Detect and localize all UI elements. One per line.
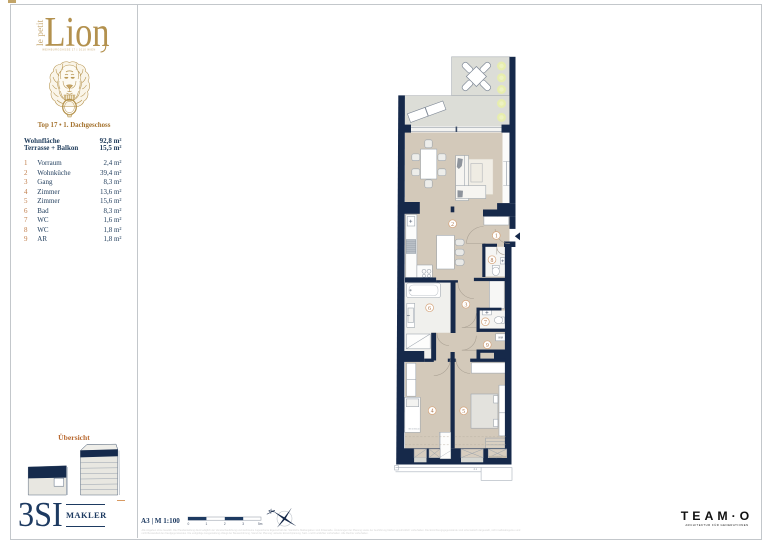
svg-text:2: 2 [451,222,454,228]
svg-text:3: 3 [464,302,467,308]
svg-text:Terrassenplatten: Terrassenplatten [489,456,502,459]
svg-text:3: 3 [242,522,244,526]
svg-text:WM: WM [498,335,503,339]
svg-text:1: 1 [495,234,498,240]
svg-text:5: 5 [462,409,465,415]
svg-text:0: 0 [188,522,190,526]
svg-text:4: 4 [431,409,434,415]
svg-text:WD 0.90/2.00: WD 0.90/2.00 [409,429,420,431]
svg-text:7: 7 [484,320,487,326]
svg-text:6: 6 [428,306,431,312]
svg-text:2: 2 [224,522,226,526]
svg-text:WEIHBURGGASSE 17 | 1010 WIEN: WEIHBURGGASSE 17 | 1010 WIEN [42,48,95,52]
svg-text:8: 8 [491,258,494,264]
svg-text:1: 1 [206,522,208,526]
svg-text:4.1: 4.1 [474,467,478,471]
svg-text:9: 9 [486,343,489,349]
